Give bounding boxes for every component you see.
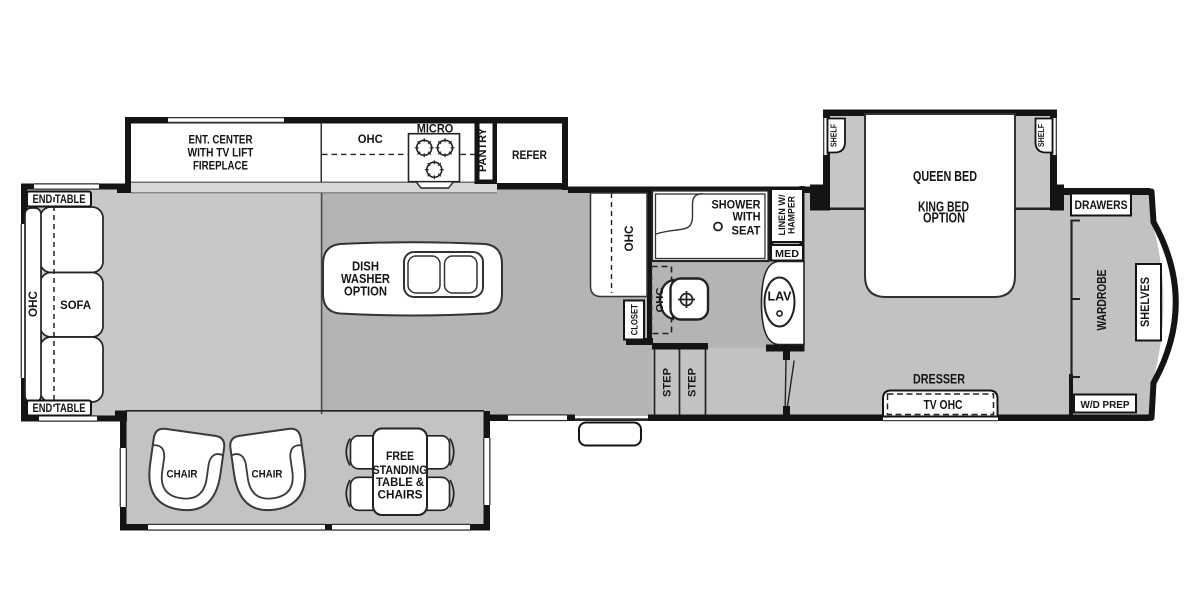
svg-text:CLOSET: CLOSET — [630, 304, 640, 335]
svg-text:TV OHC: TV OHC — [924, 398, 963, 412]
svg-text:SHELF: SHELF — [829, 124, 839, 147]
svg-text:CHAIR: CHAIR — [252, 469, 283, 481]
svg-text:REFER: REFER — [512, 148, 547, 162]
svg-text:STANDING: STANDING — [373, 465, 428, 477]
svg-text:PANTRY: PANTRY — [477, 127, 489, 172]
svg-text:SOFA: SOFA — [60, 298, 91, 312]
svg-text:OHC: OHC — [358, 132, 383, 146]
svg-text:SHOWER: SHOWER — [712, 200, 762, 212]
svg-text:FIREPLACE: FIREPLACE — [193, 161, 248, 173]
svg-text:OHC: OHC — [654, 287, 666, 312]
svg-text:SHELF: SHELF — [1036, 124, 1046, 147]
svg-text:OHC: OHC — [28, 291, 40, 317]
svg-text:HAMPER: HAMPER — [787, 196, 798, 234]
svg-text:WARDROBE: WARDROBE — [1095, 270, 1109, 331]
svg-text:OPTION: OPTION — [344, 285, 387, 299]
svg-text:DRESSER: DRESSER — [913, 371, 965, 387]
svg-text:FREE: FREE — [386, 451, 414, 463]
svg-text:WITH: WITH — [733, 211, 761, 223]
svg-text:WITH TV LIFT: WITH TV LIFT — [188, 148, 254, 160]
svg-text:QUEEN BED: QUEEN BED — [913, 169, 977, 185]
svg-text:STEP: STEP — [687, 368, 699, 397]
svg-text:DRAWERS: DRAWERS — [1075, 198, 1128, 212]
svg-text:LAV: LAV — [768, 290, 793, 304]
svg-text:OHC: OHC — [624, 226, 636, 252]
svg-text:ENT. CENTER: ENT. CENTER — [189, 135, 254, 147]
svg-text:END TABLE: END TABLE — [33, 401, 86, 415]
svg-text:TABLE &: TABLE & — [376, 477, 424, 489]
svg-text:W/D PREP: W/D PREP — [1081, 400, 1130, 411]
svg-text:CHAIR: CHAIR — [167, 469, 198, 481]
svg-text:CHAIRS: CHAIRS — [378, 490, 423, 502]
svg-text:MED: MED — [775, 248, 799, 260]
svg-text:END TABLE: END TABLE — [33, 192, 86, 206]
svg-text:OPTION: OPTION — [923, 211, 965, 227]
svg-text:SEAT: SEAT — [732, 226, 761, 238]
svg-text:STEP: STEP — [662, 368, 674, 397]
svg-text:SHELVES: SHELVES — [1140, 277, 1152, 327]
